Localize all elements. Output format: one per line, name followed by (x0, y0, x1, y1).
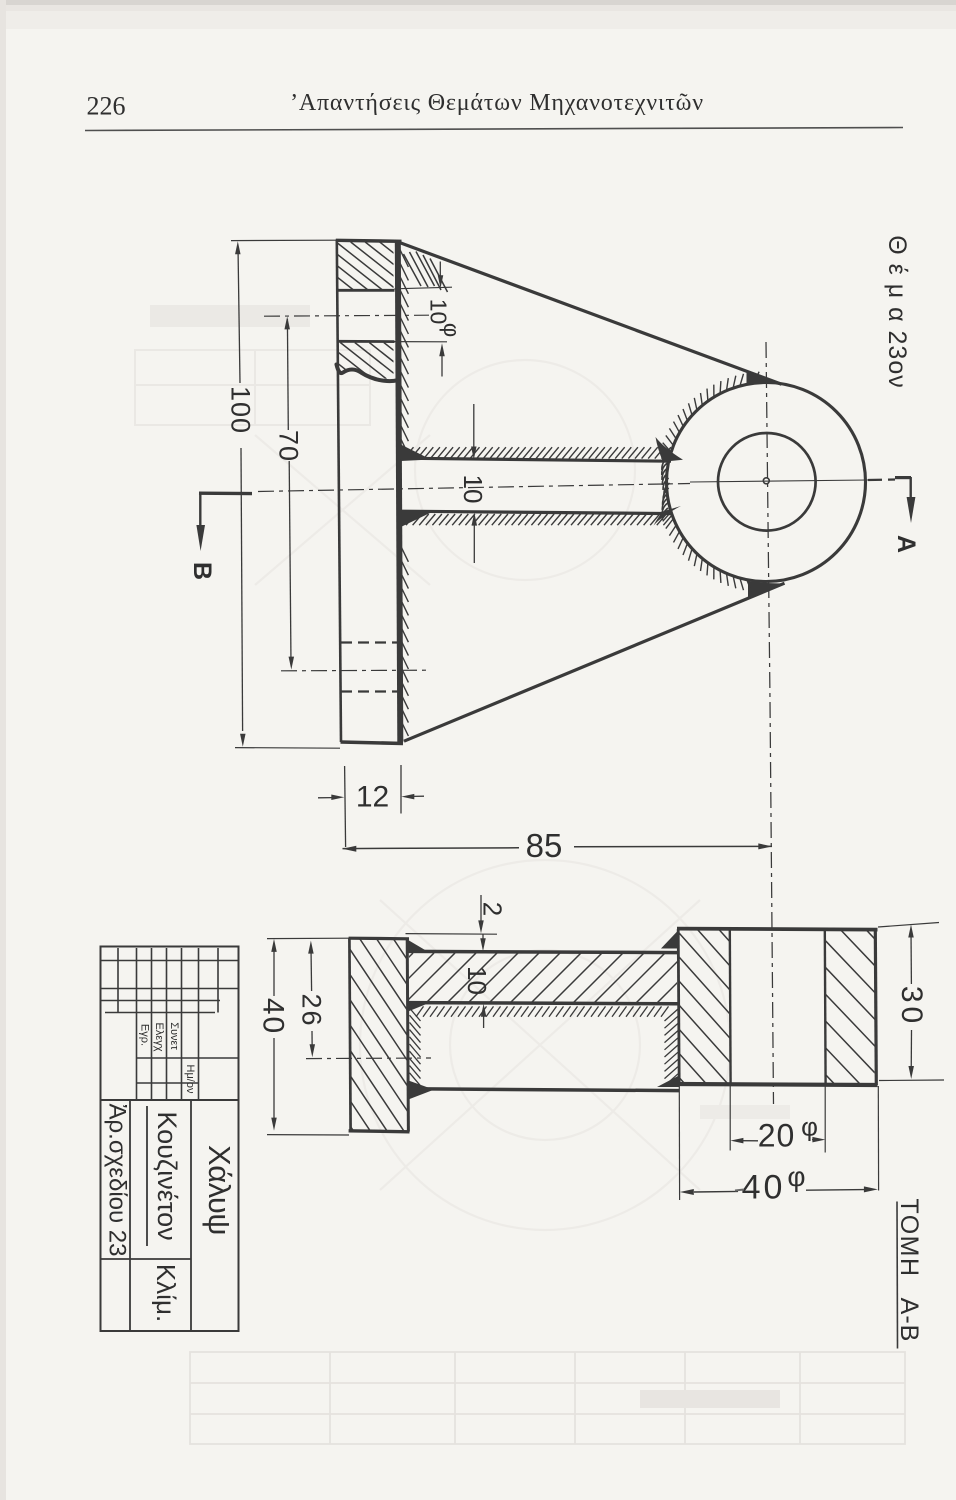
svg-text:2: 2 (478, 902, 508, 916)
svg-text:Θ έ μ α 23ον: Θ έ μ α 23ον (883, 235, 911, 388)
svg-text:Ελεγχ: Ελεγχ (153, 1022, 165, 1051)
svg-text:φ: φ (801, 1112, 818, 1142)
svg-text:100: 100 (226, 386, 256, 434)
svg-text:226: 226 (87, 92, 126, 121)
svg-text:Χάλυψ: Χάλυψ (202, 1145, 237, 1235)
svg-text:Συνετ: Συνετ (168, 1022, 180, 1050)
svg-text:Α-Β: Α-Β (895, 1298, 923, 1343)
svg-text:85: 85 (526, 827, 563, 864)
svg-text:20: 20 (758, 1118, 796, 1154)
svg-text:40: 40 (256, 998, 289, 1035)
svg-text:26: 26 (296, 993, 326, 1027)
svg-text:B: B (188, 562, 216, 580)
svg-text:70: 70 (273, 430, 303, 462)
svg-text:10: 10 (458, 475, 488, 504)
svg-text:φ: φ (787, 1161, 805, 1192)
svg-text:φ: φ (439, 323, 464, 337)
svg-text:Κουζινέτον: Κουζινέτον (152, 1111, 182, 1240)
svg-text:30: 30 (895, 986, 928, 1027)
svg-text:Εγρ.: Εγρ. (139, 1024, 151, 1046)
svg-text:Κλίμ.: Κλίμ. (151, 1264, 181, 1322)
svg-text:’Απαντήσεις Θεμάτων Μηχανοτε: ’Απαντήσεις Θεμάτων Μηχανοτεχνιτῶν (290, 90, 704, 116)
svg-text:10: 10 (426, 299, 452, 325)
svg-text:12: 12 (356, 781, 389, 814)
svg-text:ΤΟΜΗ: ΤΟΜΗ (895, 1198, 923, 1277)
svg-text:Ημ/ον: Ημ/ον (184, 1065, 196, 1094)
svg-text:Ἀρ.σχεδίου 23: Ἀρ.σχεδίου 23 (104, 1104, 131, 1257)
svg-text:A: A (892, 535, 920, 553)
svg-text:10: 10 (462, 966, 492, 995)
svg-text:40: 40 (742, 1169, 786, 1207)
